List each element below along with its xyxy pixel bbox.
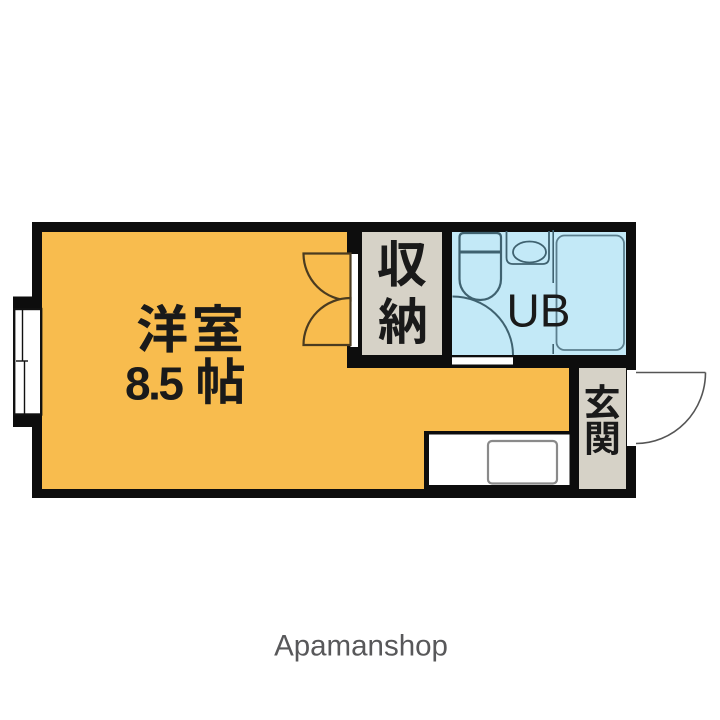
svg-text:Apamanshop: Apamanshop (274, 630, 448, 663)
svg-text:8.5: 8.5 (125, 358, 183, 410)
svg-text:UB: UB (507, 285, 571, 337)
